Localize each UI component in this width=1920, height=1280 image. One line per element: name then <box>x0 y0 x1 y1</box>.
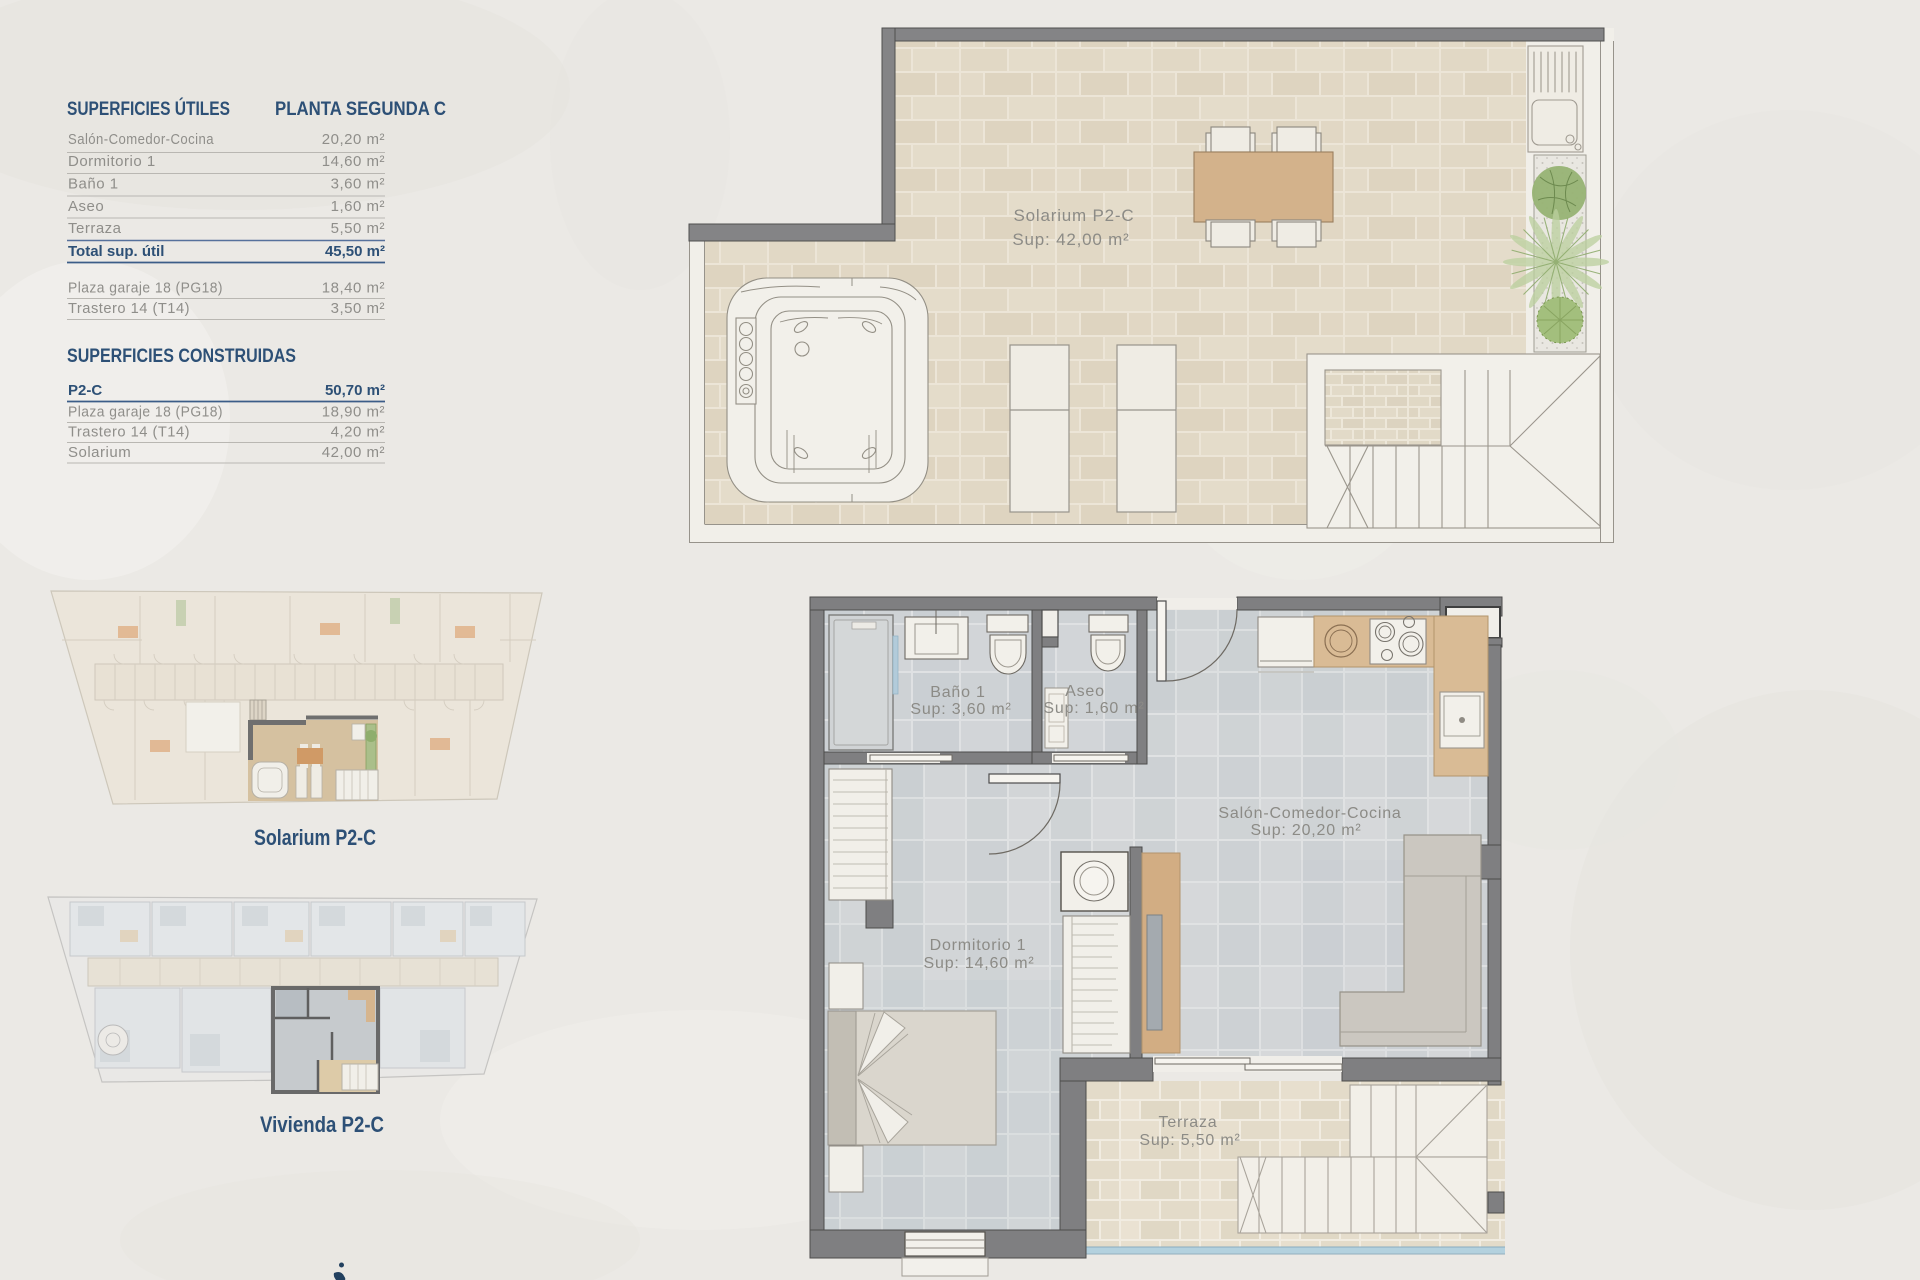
svg-text:Terraza: Terraza <box>1159 1114 1218 1131</box>
svg-text:Trastero 14 (T14): Trastero 14 (T14) <box>68 300 190 317</box>
svg-text:Sup: 14,60 m²: Sup: 14,60 m² <box>924 955 1035 972</box>
svg-text:18,40 m²: 18,40 m² <box>322 280 385 297</box>
svg-text:Baño 1: Baño 1 <box>930 684 986 701</box>
svg-text:Aseo: Aseo <box>1065 683 1105 700</box>
svg-text:Salón-Comedor-Cocina: Salón-Comedor-Cocina <box>68 131 214 148</box>
svg-text:Dormitorio 1: Dormitorio 1 <box>68 153 156 170</box>
svg-text:Sup: 42,00 m²: Sup: 42,00 m² <box>1012 230 1129 249</box>
svg-text:3,60 m²: 3,60 m² <box>331 176 385 193</box>
svg-text:14,60 m²: 14,60 m² <box>322 153 385 170</box>
svg-text:Plaza garaje 18 (PG18): Plaza garaje 18 (PG18) <box>68 404 223 421</box>
svg-text:Baño 1: Baño 1 <box>68 176 119 193</box>
svg-text:Terraza: Terraza <box>68 220 122 237</box>
svg-text:Sup: 3,60 m²: Sup: 3,60 m² <box>910 701 1011 718</box>
svg-text:Solarium P2-C: Solarium P2-C <box>254 825 376 850</box>
svg-text:Sup: 5,50 m²: Sup: 5,50 m² <box>1139 1132 1240 1149</box>
svg-text:Sup: 20,20 m²: Sup: 20,20 m² <box>1251 822 1362 839</box>
svg-text:P2-C: P2-C <box>68 382 102 399</box>
svg-text:Sup: 1,60 m²: Sup: 1,60 m² <box>1043 700 1144 717</box>
svg-text:SUPERFICIES ÚTILES: SUPERFICIES ÚTILES <box>67 98 230 120</box>
svg-text:42,00 m²: 42,00 m² <box>322 444 385 461</box>
svg-text:SUPERFICIES CONSTRUIDAS: SUPERFICIES CONSTRUIDAS <box>67 346 296 367</box>
svg-text:18,90 m²: 18,90 m² <box>322 404 385 421</box>
svg-text:Total sup. útil: Total sup. útil <box>68 243 164 260</box>
svg-text:Trastero 14 (T14): Trastero 14 (T14) <box>68 424 190 441</box>
svg-text:50,70 m²: 50,70 m² <box>325 382 385 399</box>
svg-text:4,20 m²: 4,20 m² <box>331 424 385 441</box>
svg-text:Solarium P2-C: Solarium P2-C <box>1014 206 1135 225</box>
svg-text:20,20 m²: 20,20 m² <box>322 131 385 148</box>
svg-text:3,50 m²: 3,50 m² <box>331 300 385 317</box>
svg-text:Plaza garaje 18 (PG18): Plaza garaje 18 (PG18) <box>68 280 223 297</box>
svg-text:Aseo: Aseo <box>68 198 104 215</box>
svg-text:Vivienda P2-C: Vivienda P2-C <box>260 1112 384 1137</box>
svg-text:Dormitorio 1: Dormitorio 1 <box>930 937 1027 954</box>
svg-text:Salón-Comedor-Cocina: Salón-Comedor-Cocina <box>1218 805 1401 822</box>
svg-text:Solarium: Solarium <box>68 444 131 461</box>
svg-text:PLANTA SEGUNDA C: PLANTA SEGUNDA C <box>275 99 446 120</box>
svg-text:5,50 m²: 5,50 m² <box>331 220 385 237</box>
svg-text:45,50 m²: 45,50 m² <box>325 243 385 260</box>
svg-text:1,60 m²: 1,60 m² <box>331 198 385 215</box>
